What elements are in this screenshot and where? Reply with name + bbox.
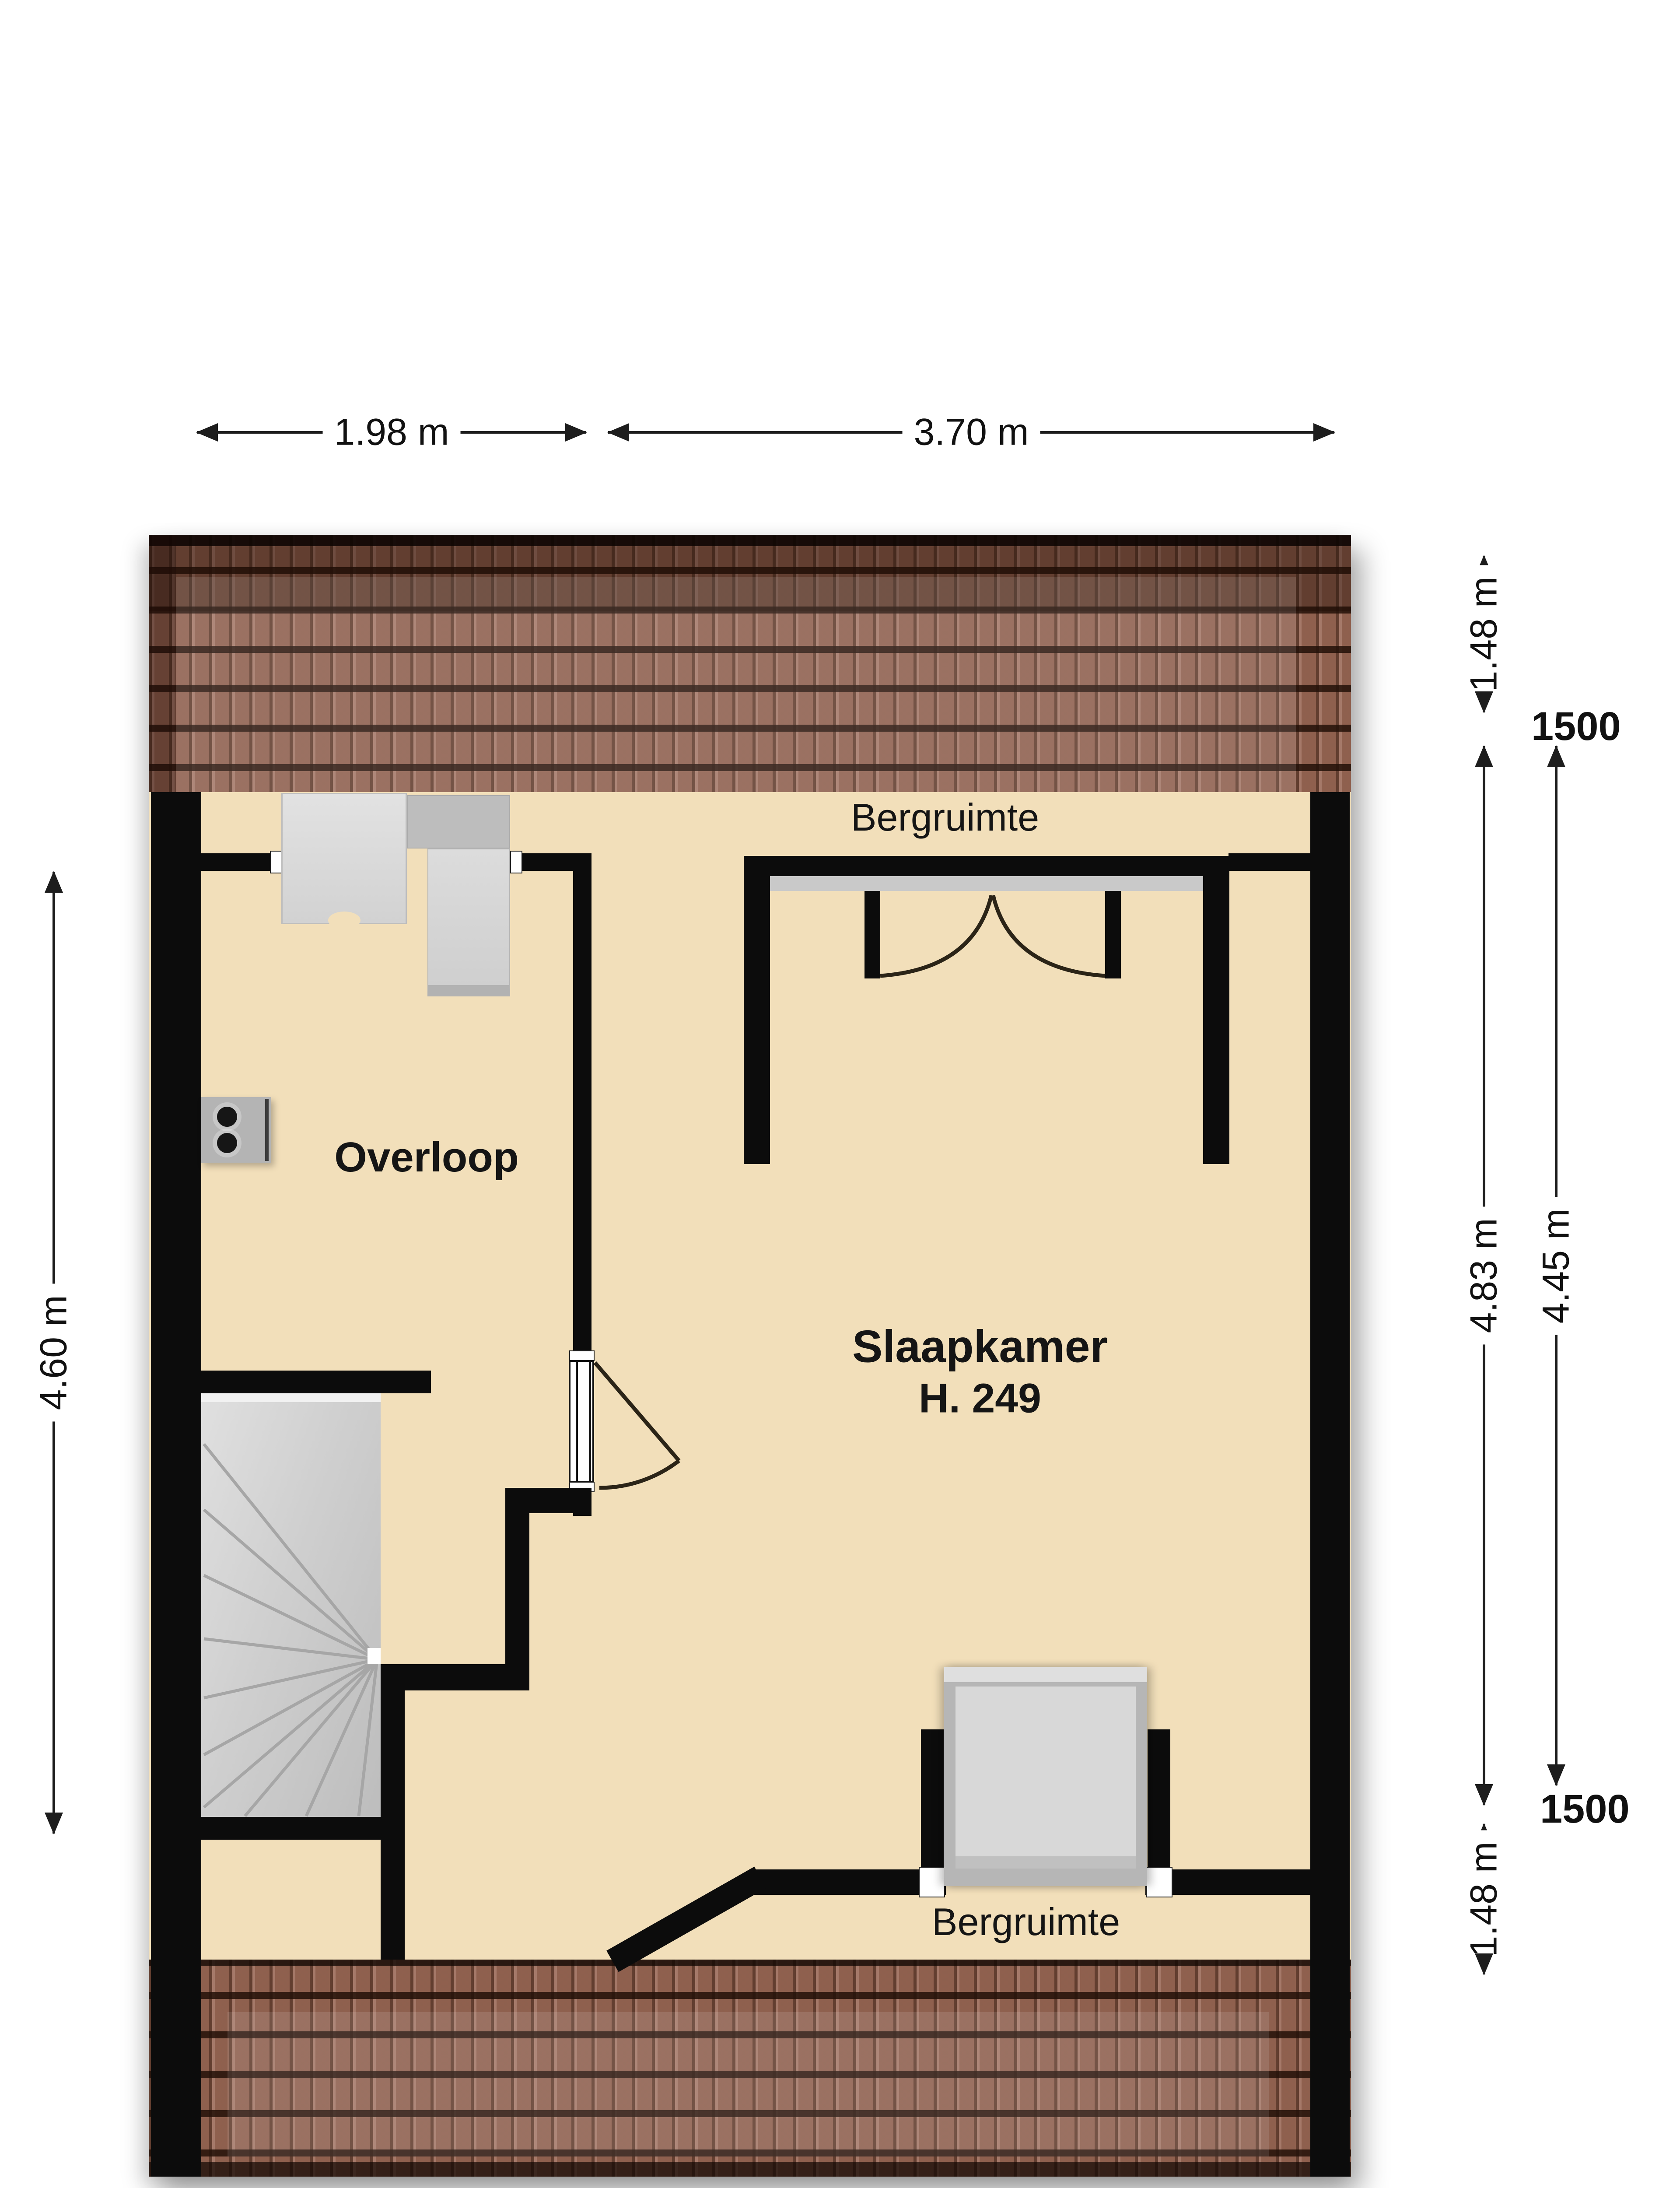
wall-knee-top-mid — [521, 853, 574, 871]
wall-outer-left — [151, 792, 201, 2177]
wall-closet-left-leg — [744, 876, 770, 1164]
roof-bottom-top-edge — [149, 1960, 1351, 1966]
closet-track — [770, 876, 1203, 891]
dormer-post-left — [921, 1729, 944, 1869]
door-jamb-top — [569, 1350, 595, 1361]
dimension-right-inner: 4.83 m — [1483, 746, 1485, 1805]
wall-cap — [919, 1867, 945, 1897]
dimension-right-outer: 4.45 m — [1555, 746, 1557, 1785]
roof-side-edge — [149, 535, 176, 792]
roof-band-top — [149, 535, 1351, 792]
dimension-label: 1.98 m — [323, 411, 461, 454]
dimension-top-left: 1.98 m — [197, 431, 586, 434]
furniture-cabinet — [281, 793, 407, 924]
wall-stairs-right — [381, 1664, 405, 1960]
wall-cap — [510, 851, 522, 873]
wall-landing-vertical — [505, 1488, 529, 1690]
dimension-left: 4.60 m — [52, 872, 55, 1834]
dimension-label: 4.45 m — [1535, 1197, 1578, 1335]
dimension-right-roof-top: 1.48 m — [1483, 556, 1485, 712]
dimension-label: 4.60 m — [32, 1284, 76, 1422]
cabinet-notch — [328, 912, 360, 929]
wall-knee-top-right — [1228, 853, 1310, 871]
dormer-window-glass — [955, 1687, 1136, 1869]
roof-dormer-highlight-top — [176, 577, 1296, 792]
dimension-label: 3.70 m — [903, 411, 1040, 454]
roof-dormer-highlight-bottom — [227, 2012, 1269, 2156]
utility-box — [201, 1097, 271, 1163]
dormer-window — [944, 1667, 1147, 1886]
dormer-post-right — [1148, 1729, 1170, 1869]
wall-bedroom-bottom-left — [749, 1869, 946, 1895]
roof-bottom-edge — [149, 2162, 1351, 2177]
wall-closet-right-leg — [1203, 876, 1229, 1164]
stairs-top-highlight — [201, 1393, 381, 1402]
room-label-bergruimte-top: Bergruimte — [851, 795, 1039, 840]
wall-cap — [270, 851, 282, 873]
wall-stairs-top — [201, 1371, 431, 1393]
dimension-label: 1.48 m — [1463, 565, 1506, 703]
closet-door-post-left — [864, 891, 880, 978]
wall-outer-right — [1310, 792, 1350, 2177]
room-label-ceiling-height: H. 249 — [919, 1375, 1041, 1423]
dimension-top-right: 3.70 m — [608, 431, 1334, 434]
knee-height-label-top: 1500 — [1531, 704, 1621, 750]
connection-dot-icon — [217, 1133, 237, 1153]
room-label-slaapkamer: Slaapkamer — [852, 1321, 1108, 1373]
knee-height-label-bottom: 1500 — [1540, 1786, 1630, 1832]
staircase — [201, 1393, 381, 1817]
door-leaf — [569, 1360, 594, 1483]
closet-door-post-right — [1105, 891, 1121, 978]
wall-stairs-bottom — [201, 1817, 381, 1840]
utility-box-edge — [265, 1099, 269, 1161]
room-label-overloop: Overloop — [334, 1133, 518, 1182]
furniture-counter — [407, 795, 510, 849]
floorplan — [149, 535, 1351, 2177]
connection-dot-icon — [217, 1107, 237, 1127]
dormer-window-top — [944, 1667, 1147, 1682]
room-label-bergruimte-bottom: Bergruimte — [932, 1900, 1120, 1944]
wall-divider-upper — [573, 853, 591, 1352]
wall-knee-top-left — [201, 853, 281, 871]
dimension-right-roof-bottom: 1.48 m — [1483, 1824, 1485, 1974]
dimension-label: 4.83 m — [1463, 1207, 1506, 1345]
roof-top-edge — [149, 535, 1351, 546]
roof-band-bottom — [149, 1960, 1351, 2177]
dimension-label: 1.48 m — [1463, 1830, 1506, 1968]
wall-closet-front — [744, 856, 1229, 876]
furniture-appliance — [427, 849, 510, 996]
wall-cap — [1146, 1867, 1172, 1897]
